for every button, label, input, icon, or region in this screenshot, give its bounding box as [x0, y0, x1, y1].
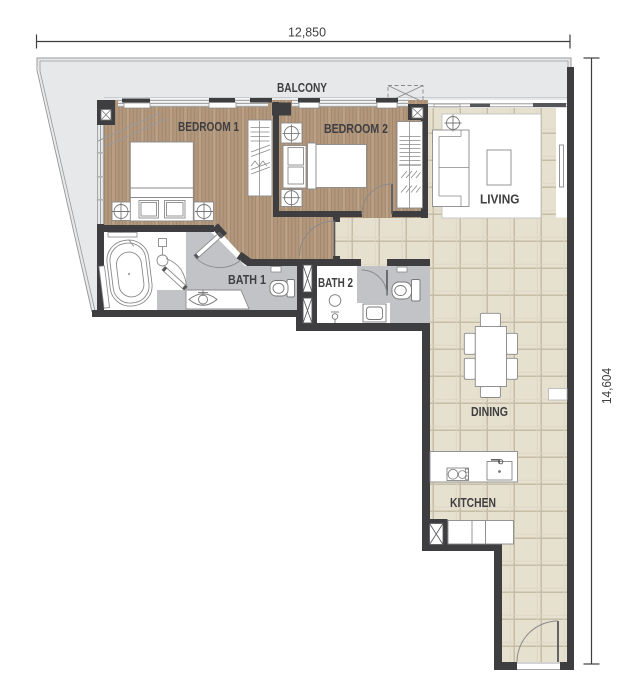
svg-text:DINING: DINING [471, 404, 508, 419]
svg-text:14,604: 14,604 [599, 368, 614, 404]
svg-text:12,850: 12,850 [288, 25, 326, 40]
svg-text:KITCHEN: KITCHEN [450, 495, 496, 510]
svg-text:LIVING: LIVING [480, 192, 520, 207]
svg-text:BEDROOM 2: BEDROOM 2 [324, 121, 388, 136]
svg-text:BEDROOM 1: BEDROOM 1 [178, 119, 239, 134]
svg-text:BATH 1: BATH 1 [228, 272, 266, 287]
svg-text:BALCONY: BALCONY [277, 80, 327, 95]
svg-text:BATH 2: BATH 2 [318, 275, 353, 290]
